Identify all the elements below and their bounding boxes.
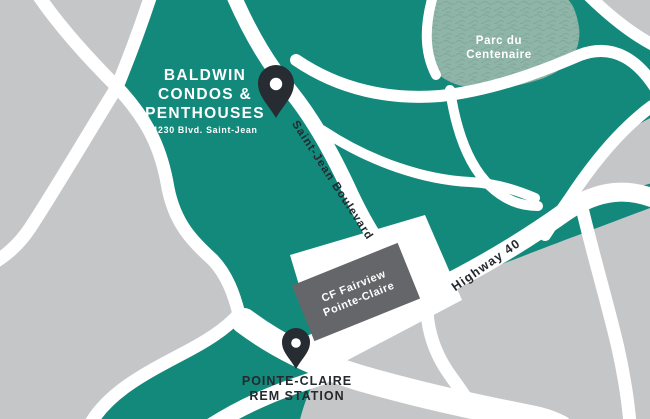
property-name-line3: PENTHOUSES [145, 105, 265, 122]
location-map: CF Fairview Pointe-Claire Saint-Jean Bou… [0, 0, 650, 419]
property-name-line1: BALDWIN [164, 67, 246, 84]
property-address: 4230 Blvd. Saint-Jean [152, 125, 257, 135]
park-label-line1: Parc du [476, 35, 522, 47]
park-label-line2: Centenaire [466, 49, 531, 61]
property-name-line2: CONDOS & [158, 86, 252, 103]
station-label: POINTE-CLAIRE REM STATION [242, 374, 352, 403]
map-canvas: CF Fairview Pointe-Claire Saint-Jean Bou… [0, 0, 650, 419]
station-label-line2: REM STATION [249, 389, 344, 403]
station-label-line1: POINTE-CLAIRE [242, 374, 352, 388]
